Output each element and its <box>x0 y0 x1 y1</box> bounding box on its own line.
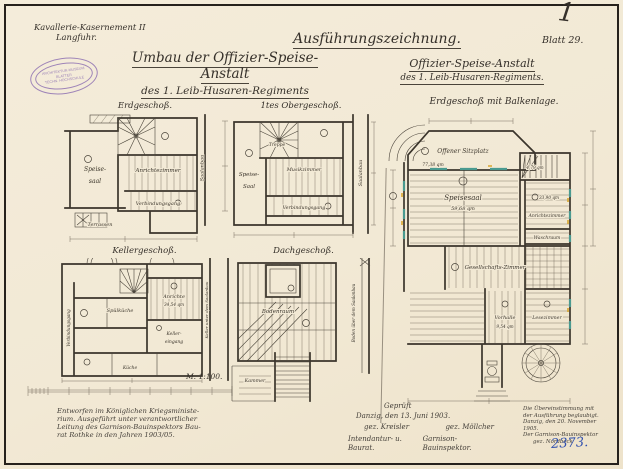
side-label-saalanbau: Saalanbau <box>200 155 206 182</box>
plan-hauptplan-title: Erdgeschoß mit Balkenlage. <box>385 97 603 109</box>
plan-kellergeschoss: Kellergeschoß. Spülküche Anrichte 34,54 … <box>52 246 237 383</box>
room-number-circle <box>157 326 162 331</box>
room-label-treppe: Treppe <box>269 142 286 148</box>
approval-line2: Danzig, den 13. Juni 1903. <box>348 412 498 422</box>
stair-radials <box>120 269 148 293</box>
room-area-speisesaal: 59,68 qm <box>451 206 475 212</box>
plan-obergeschoss-drawing: Treppe Speise- Saal Musikzimmer Verbindu… <box>226 113 376 243</box>
room-number-circle <box>162 133 169 140</box>
corner-pen-mark: 1 <box>556 0 576 29</box>
main-title-line2: des 1. Leib-Husaren-Regiments <box>141 85 309 99</box>
dimension-lines <box>62 378 202 383</box>
partitions-arches <box>87 258 174 376</box>
location-line2: Langfuhr. <box>34 32 174 42</box>
room-number-circle <box>81 310 88 317</box>
plan-kellergeschoss-drawing: Spülküche Anrichte 34,54 qm Keller- eing… <box>52 258 237 383</box>
joists-musik <box>270 159 340 195</box>
plan-erdgeschoss-drawing: Speise- saal Anrichtezimmer Verbindungsg… <box>55 113 235 243</box>
room-label-speisesaal1: Speise- <box>239 172 259 178</box>
room-number-circle <box>502 301 508 307</box>
entrance-steps <box>474 391 510 401</box>
room-number-circle <box>246 150 253 157</box>
side-label-boden-saalanbau: Boden über dem Saalanbau <box>351 283 356 343</box>
portico-base <box>485 377 499 382</box>
room-label-waschraum: Waschraum <box>534 235 561 241</box>
room-area-treppe: 4,79 qm <box>525 165 543 170</box>
design-note: Entworfen im Königlichen Kriegsministe- … <box>57 407 232 439</box>
room-label-lesezimmer: Lesezimmer <box>531 315 562 321</box>
plan-dachgeschoss-title: Dachgeschoß. <box>231 246 376 258</box>
main-title-line1: Umbau der Offizier-Speise-Anstalt <box>132 50 318 84</box>
right-title-line2: des 1. Leib-Husaren-Regiments. <box>400 73 543 85</box>
room-area-anrichte: 33,90 qm <box>539 195 559 200</box>
drawing-type-title: Ausführungszeichnung. <box>293 31 461 47</box>
approval-line1: Geprüft <box>348 402 498 412</box>
room-label-spuelkueche: Spülküche <box>107 308 134 314</box>
plan-erdgeschoss-title: Erdgeschoß. <box>55 101 235 113</box>
side-label-verbindungsgang: Verbindungsgang <box>66 309 71 347</box>
ruler-ticks <box>28 386 232 396</box>
signature-left: gez. Kreisler <box>364 423 409 433</box>
stair-radials <box>260 122 298 158</box>
room-label-speisesaal2: Saal <box>243 184 255 190</box>
cert-line2: der Ausführung beglaubigt. <box>523 413 613 420</box>
sheet-number: Blatt 29. <box>542 35 583 46</box>
room-number-circle <box>171 283 177 289</box>
drawing-sheet: 1 Kavallerie-Kasernement II Langfuhr. AR… <box>0 0 623 469</box>
location-block: Kavallerie-Kasernement II Langfuhr. <box>34 22 174 42</box>
approval-note: Geprüft Danzig, den 13. Juni 1903. gez. … <box>348 402 498 454</box>
room-label-gesellschaftszimmer: Gesellschafts-Zimmer <box>465 265 526 271</box>
joists-lower-left <box>410 293 484 341</box>
right-title-block: Offizier-Speise-Anstalt des 1. Leib-Husa… <box>388 57 556 83</box>
main-title-block: Umbau der Offizier-Speise-Anstalt des 1.… <box>118 50 332 97</box>
scale-ruler <box>26 385 234 397</box>
room-label-speisesaal2: saal <box>89 178 101 185</box>
room-area-vorhalle: 9,54 qm <box>496 324 513 329</box>
room-number-circle <box>544 301 550 307</box>
dormer-mask <box>266 265 300 297</box>
design-note-line2: rium. Ausgeführt unter verantwortlicher <box>57 415 232 423</box>
room-label-anrichtezimmer: Anrichtezimmer <box>135 168 181 174</box>
cert-line1: Die Übereinstimmung mit <box>523 406 613 413</box>
room-number-circle <box>321 130 328 137</box>
role-right: Garnison-Bauinspektor. <box>423 435 498 454</box>
room-label-vorhalle: Vorhalle <box>495 315 516 321</box>
plan-dachgeschoss: Dachgeschoß. Bodenraum Kammer Boden über… <box>231 246 376 405</box>
room-label-kueche: Küche <box>122 365 138 371</box>
room-label-terrasse: Terrassen <box>88 222 113 228</box>
plan-erdgeschoss: Erdgeschoß. Speise- saal Anrichtezimmer … <box>55 101 235 243</box>
room-label-keller2: eingang <box>165 339 183 345</box>
room-label-kammer: Kammer <box>244 378 266 384</box>
right-title-line1: Offizier-Speise-Anstalt <box>409 57 534 72</box>
cert-line3: Danzig, den 20. November 1905. <box>523 419 613 432</box>
role-left: Intendantur- u. Baurat. <box>348 435 423 454</box>
stair-radials <box>118 118 155 155</box>
location-line1: Kavallerie-Kasernement II <box>34 22 174 32</box>
dimension-lines <box>234 122 376 238</box>
inventory-number: 2373. <box>551 435 589 452</box>
room-label-sitzplatz: Offener Sitzplatz <box>437 148 489 155</box>
museum-stamp: ARCHITEKTUR-MUSEUM BLATTER TECHN. HOCHSC… <box>28 53 100 98</box>
room-area-anrichte: 34,54 qm <box>164 302 184 307</box>
plan-hauptplan: Erdgeschoß mit Balkenlage. <box>385 97 603 411</box>
side-label-keller-saalanbau: Keller unter dem Saalanbau <box>204 281 209 339</box>
plan-obergeschoss-title: 1tes Obergeschoß. <box>226 101 376 113</box>
scale-label: M. 1:100. <box>186 372 222 381</box>
room-number-circle <box>303 320 310 327</box>
room-label-anrichte: Anrichte <box>162 294 185 300</box>
portico-cap <box>487 361 497 365</box>
design-note-line1: Entworfen im Königlichen Kriegsministe- <box>57 407 232 415</box>
plan-obergeschoss: 1tes Obergeschoß. Treppe Speise- Saal Mu… <box>226 101 376 243</box>
plan-dachgeschoss-drawing: Bodenraum Kammer Boden über dem Saalanba… <box>231 258 376 405</box>
side-label-saalanbau: Saalanbau <box>358 160 364 187</box>
museum-stamp-text: ARCHITEKTUR-MUSEUM BLATTER TECHN. HOCHSC… <box>33 59 94 93</box>
plan-hauptplan-drawing: Offener Sitzplatz 77,38 qm Speisesaal 59… <box>385 109 603 411</box>
room-label-verbindungsgang: Verbindungsgang <box>136 201 181 207</box>
room-label-anrichtezimmer: Anrichtezimmer <box>528 213 567 219</box>
room-number-circle <box>85 156 92 163</box>
room-number-circle <box>452 264 459 271</box>
room-number-circle <box>422 148 429 155</box>
design-note-line3: Leitung des Garnison-Bauinspektors Bau- <box>57 423 232 431</box>
room-label-bodenraum: Bodenraum <box>261 309 294 315</box>
design-note-line4: rat Rothke in den Jahren 1903/05. <box>57 431 232 439</box>
room-label-musikzimmer: Musikzimmer <box>286 167 322 173</box>
room-label-speisesaal1: Speise- <box>84 166 106 173</box>
room-label-speisesaal: Speisesaal <box>444 194 482 202</box>
signature-right: gez. Möllcher <box>445 423 494 433</box>
room-label-keller1: Keller- <box>165 331 182 337</box>
room-number-circle <box>84 359 90 365</box>
portico-column <box>488 367 497 376</box>
plan-kellergeschoss-title: Kellergeschoß. <box>52 246 237 258</box>
room-area-sitzplatz: 77,38 qm <box>422 162 443 168</box>
room-label-verbindungsgang: Verbindungsgang <box>283 205 326 211</box>
